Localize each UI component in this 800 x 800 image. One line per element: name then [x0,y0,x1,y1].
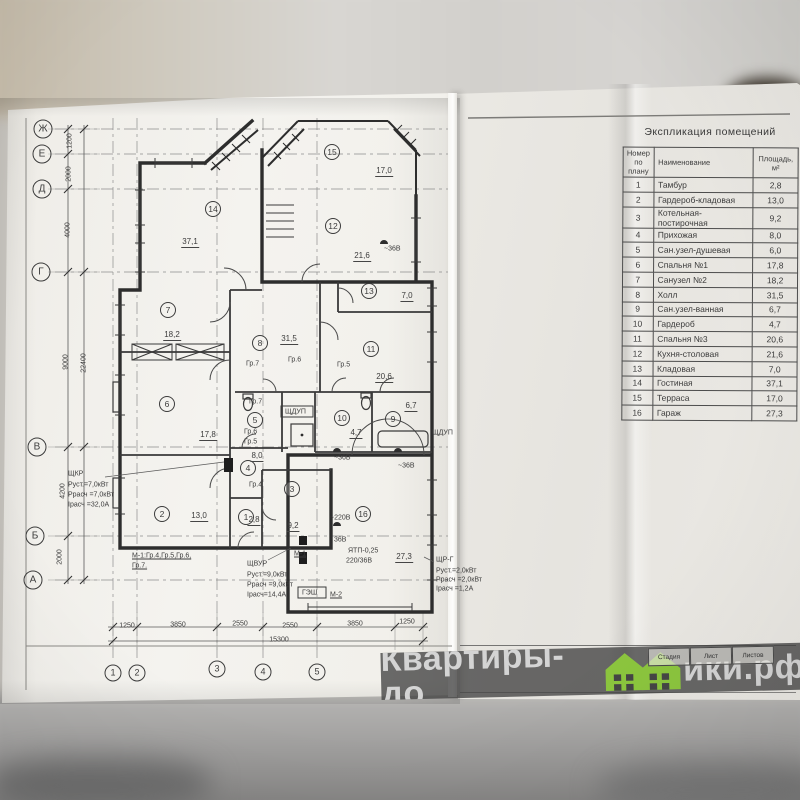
annotation-label: Iрасч =1,2А [436,586,473,593]
dim-label-vertical: 1200 [67,133,74,149]
cell-name: Сан.узел-душевая [653,243,753,258]
table-row: 11Спальня №320,6 [622,331,797,347]
room-circle-13: 13 [361,283,377,299]
cell-number: 16 [622,405,653,420]
dim-label-vertical: 22400 [81,353,88,372]
area-label: 21,6 [353,252,371,262]
cell-number: 15 [622,390,653,405]
room-circle-15: 15 [324,144,340,160]
dim-label-vertical: 4200 [60,483,67,499]
titleblock-cells: СтадияЛистЛистов [648,646,774,667]
cell-name: Гардероб [653,317,753,332]
table-row: 13Кладовая7,0 [622,361,797,377]
cell-number: 12 [622,346,653,361]
annotation-label: ~36В [398,463,415,470]
annotation-label: Ррасч =9,0кВт [247,582,293,589]
area-label: 37,1 [181,238,199,248]
annotation-label: ~220В [330,515,350,522]
cell-name: Прихожая [653,228,753,243]
dim-label-horizontal: 15300 [269,637,288,644]
cell-area: 6,0 [753,243,798,258]
annotation-label: Руст.=7,0кВт [68,482,109,489]
room-circle-10: 10 [334,410,350,426]
annotation-label: ЩР-Г [436,557,453,564]
axis-row-Е: Е [33,145,52,164]
area-label: 17,8 [199,431,217,441]
cell-number: 11 [622,331,653,346]
annotation-label: Гр.5 [244,439,257,446]
table-row: 9Сан.узел-ванная6,7 [622,302,797,318]
cell-area: 20,6 [752,332,797,347]
axis-row-Б: Б [26,527,45,546]
cell-name: Холл [653,287,753,302]
room-circle-11: 11 [363,341,379,357]
area-label: 27,3 [395,553,413,563]
table-row: 4Прихожая8,0 [623,228,798,244]
cell-name: Гардероб-кладовая [653,192,753,207]
table-row: 1Тамбур2,8 [623,177,798,193]
annotation-label: ~36В [384,246,401,253]
cell-name: Котельная-постирочная [653,207,753,229]
annotation-label: ~36В [334,455,351,462]
area-label: 2,8 [247,516,260,526]
area-label: 31,5 [280,335,298,345]
room-circle-3: 3 [284,481,300,497]
cell-number: 2 [623,192,654,207]
annotation-label: Iрасч=14,4А [247,592,286,599]
annotation-label: ГЭШ [302,590,317,597]
area-label: 18,2 [163,331,181,341]
table-row: 10Гардероб4,7 [622,316,797,332]
cell-number: 5 [623,242,654,257]
cell-area: 37,1 [752,376,797,391]
cell-area: 27,3 [752,406,797,421]
annotation-label: 220/36В [346,558,372,565]
cell-area: 21,6 [752,347,797,362]
annotation-label: Гр.6 [288,357,301,364]
titleblock-cell: Лист [690,647,732,666]
annotation-label: 36В [334,537,346,544]
table-row: 12Кухня-столовая21,6 [622,346,797,362]
annotation-label: ЯТП-0,25 [348,548,378,555]
cell-name: Кухня-столовая [653,346,753,361]
axis-col-5: 5 [309,664,326,681]
col-header-name: Наименование [654,147,754,178]
area-label: 6,7 [404,402,417,412]
annotation-label: ЩДУП [432,430,453,437]
axis-col-2: 2 [129,665,146,682]
axis-col-1: 1 [105,665,122,682]
annotation-label: Гр.7 [249,399,262,406]
annotation-label: ЩКР [68,471,83,478]
cell-area: 17,8 [753,258,798,273]
titleblock-cell: Стадия [648,647,690,666]
cell-number: 6 [623,257,654,272]
area-label: 8,0 [250,452,263,462]
axis-row-А: А [24,571,43,590]
cell-number: 7 [622,272,653,287]
room-circle-9: 9 [385,411,401,427]
table-row: 7Санузел №218,2 [622,272,797,288]
room-circle-12: 12 [325,218,341,234]
table-row: 5Сан.узел-душевая6,0 [623,242,798,258]
table-row: 3Котельная-постирочная9,2 [623,207,798,229]
axis-col-4: 4 [255,664,272,681]
room-circle-2: 2 [154,506,170,522]
annotation-label: М-1:Гр.4,Гр.5,Гр.6, [132,553,191,560]
area-label: 9,2 [286,522,299,532]
cell-area: 17,0 [752,391,797,406]
room-circle-8: 8 [252,335,268,351]
room-circle-5: 5 [247,412,263,428]
cell-number: 3 [623,207,654,228]
annotation-label: Ррасч =7,0кВт [68,492,114,499]
area-label: 4,7 [349,429,362,439]
cell-area: 13,0 [753,193,798,208]
annotation-label: М-2 [330,592,342,599]
dim-label-horizontal: 1250 [119,623,135,630]
area-label: 7,0 [400,292,413,302]
cell-name: Кладовая [653,361,753,376]
axis-row-Г: Г [32,263,51,282]
cell-area: 7,0 [752,361,797,376]
cell-number: 8 [622,287,653,302]
table-row: 8Холл31,5 [622,287,797,303]
cell-area: 18,2 [753,273,798,288]
annotation-label: М-1 [294,551,306,558]
axis-row-В: В [28,438,47,457]
explication-table: Номер по плану Наименование Площадь, м² … [621,147,798,422]
annotation-label: Гр.5 [337,362,350,369]
annotation-label: Гр.6 [244,429,257,436]
table-row: 16Гараж27,3 [622,405,797,421]
cell-name: Терраса [652,391,752,406]
room-circle-16: 16 [355,506,371,522]
cell-number: 14 [622,376,653,391]
cell-area: 2,8 [753,178,798,193]
room-circle-6: 6 [159,396,175,412]
cell-number: 13 [622,361,653,376]
cell-name: Гараж [652,405,752,420]
photo-of-floorplan: ЖЕДГВБА123451415121311876109543121637,11… [0,0,800,800]
dim-label-horizontal: 3850 [347,621,363,628]
room-circle-14: 14 [205,201,221,217]
table-row: 6Спальня №117,8 [623,257,798,273]
explication-panel: Экспликация помещений Номер по плану Наи… [622,126,798,421]
area-label: 20,6 [375,373,393,383]
cell-name: Спальня №1 [653,257,753,272]
room-circle-7: 7 [160,302,176,318]
dim-label-vertical: 2000 [57,549,64,565]
dim-label-horizontal: 1250 [399,619,415,626]
cell-number: 1 [623,177,654,192]
table-row: 2Гардероб-кладовая13,0 [623,192,798,208]
dim-label-horizontal: 2550 [282,623,298,630]
annotation-label: Руст.=2,0кВт [436,568,477,575]
annotation-label: Руст.=9,0кВт [247,572,288,579]
area-label: 17,0 [375,167,393,177]
annotation-label: ЩДУП [285,409,306,416]
cell-area: 8,0 [753,228,798,243]
annotation-label: ЩВУР [247,561,267,568]
cell-name: Гостиная [652,376,752,391]
cell-number: 10 [622,316,653,331]
cell-area: 31,5 [753,288,798,303]
col-header-area: Площадь, м² [753,148,798,178]
room-circle-4: 4 [240,460,256,476]
annotation-label: Гр.7. [132,563,147,570]
col-header-number: Номер по плану [623,147,654,177]
cell-number: 4 [623,228,654,243]
explication-title: Экспликация помещений [622,126,798,138]
table-header-row: Номер по плану Наименование Площадь, м² [623,147,798,178]
annotation-label: Iрасч =32,0А [68,502,109,509]
axis-row-Д: Д [33,180,52,199]
cell-number: 9 [622,302,653,317]
dim-label-vertical: 9000 [63,354,70,370]
cell-name: Тамбур [653,177,753,192]
annotation-label: Гр.7 [246,361,259,368]
dim-label-horizontal: 3850 [170,622,186,629]
annotation-label: Гр.4 [249,482,262,489]
titleblock-cell: Листов [732,646,774,665]
cell-area: 4,7 [752,317,797,332]
watermark-text-left: Квартиры-до [380,643,604,700]
dim-label-vertical: 4000 [65,222,72,238]
area-label: 13,0 [190,512,208,522]
dim-label-vertical: 2000 [66,166,73,182]
cell-name: Санузел №2 [653,272,753,287]
cell-name: Спальня №3 [653,331,753,346]
cell-area: 9,2 [753,207,798,228]
axis-col-3: 3 [209,661,226,678]
table-row: 15Терраса17,0 [622,390,797,406]
dim-label-horizontal: 2550 [232,621,248,628]
cell-name: Сан.узел-ванная [653,302,753,317]
cell-area: 6,7 [753,302,798,317]
table-row: 14Гостиная37,1 [622,376,797,392]
annotation-label: Ррасч =2,0кВт [436,577,482,584]
axis-row-Ж: Ж [34,120,53,139]
